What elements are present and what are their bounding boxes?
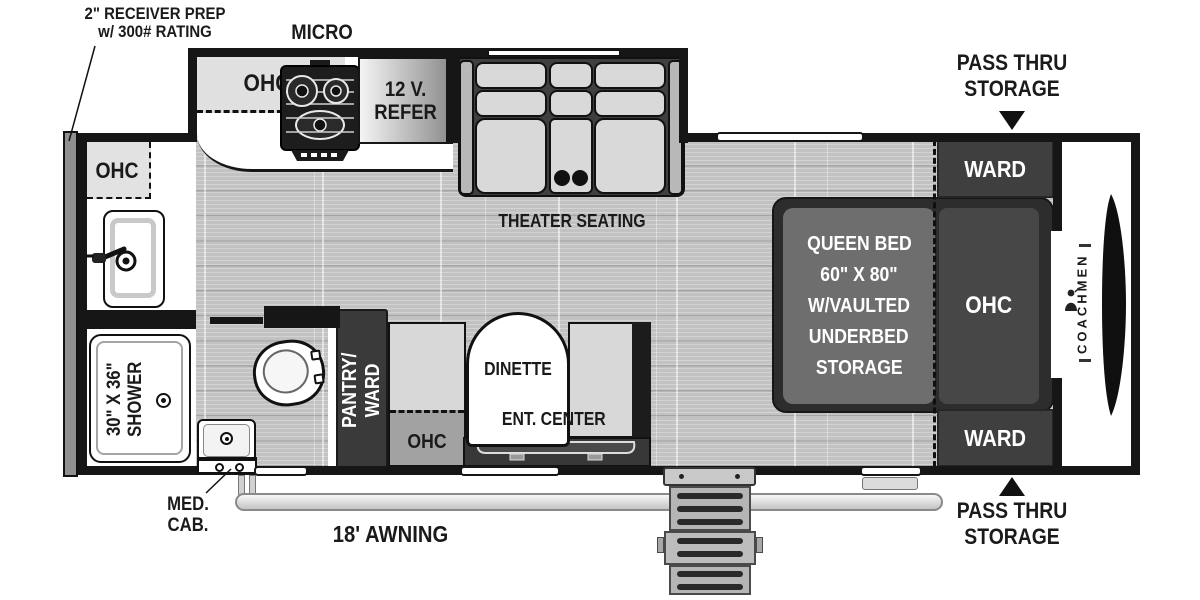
med-cab-knob-1 xyxy=(215,463,224,472)
vanity-sink xyxy=(197,419,256,462)
step3-tread-1 xyxy=(677,571,743,577)
rear-wall xyxy=(78,133,87,475)
pass-thru-top-line1: PASS THRU xyxy=(956,50,1069,76)
shower-drain-dot xyxy=(161,398,166,403)
bath-pocket-door xyxy=(210,317,263,324)
bed-overhead-cabinet: OHC xyxy=(939,208,1039,404)
ent-center-label: ENT. CENTER xyxy=(502,409,603,430)
pass-thru-top-label: PASS THRU STORAGE xyxy=(948,50,1076,102)
bed-ohc-label: OHC xyxy=(966,292,1013,320)
awning-arm-left-2 xyxy=(249,475,256,495)
receiver-prep-label: 2" RECEIVER PREP w/ 300# RATING xyxy=(55,5,255,41)
threshold-bolt-2 xyxy=(735,474,740,479)
receiver-prep-leader-line xyxy=(69,46,95,141)
theater-right-backrest-2 xyxy=(594,90,666,117)
step-latch-right xyxy=(756,537,763,553)
pass-thru-top-arrow-icon xyxy=(999,111,1025,130)
wardrobe-bottom: WARD xyxy=(937,409,1054,467)
top-wall-left xyxy=(80,133,190,142)
refer-label-line2: REFER xyxy=(374,101,437,124)
bottom-window-bedroom xyxy=(860,466,922,476)
queen-bed: QUEEN BED 60" X 80" W/VAULTED UNDERBED S… xyxy=(783,208,935,404)
theater-right-seat xyxy=(594,118,666,194)
refrigerator: 12 V. REFER xyxy=(358,57,453,144)
pass-thru-bottom-label: PASS THRU STORAGE xyxy=(948,498,1076,550)
bath-faucet-icon xyxy=(84,240,142,274)
shower-drain-icon xyxy=(156,393,171,408)
step2-tread-1 xyxy=(677,538,743,544)
bath-partition-wall xyxy=(78,310,196,329)
shower-label-line1: 30" X 36" xyxy=(104,362,125,435)
queen-bed-label-line2: 60" X 80" xyxy=(820,260,897,291)
kitchen-slide-top-wall xyxy=(188,48,460,57)
bath-ohc-label: OHC xyxy=(91,158,144,184)
awning-roller xyxy=(235,493,943,511)
theater-slide-right-wall xyxy=(679,48,688,143)
receiver-prep-line2: w/ 300# RATING xyxy=(67,23,243,41)
cupholder-right-icon xyxy=(572,170,588,186)
vanity-faucet-icon xyxy=(220,432,233,445)
theater-left-backrest-1 xyxy=(475,62,547,89)
queen-bed-label-line3: W/VAULTED xyxy=(808,291,910,322)
queen-bed-label-line5: STORAGE xyxy=(816,353,903,384)
pass-thru-bottom-line2: STORAGE xyxy=(956,524,1069,550)
step-latch-left xyxy=(657,537,664,553)
entry-threshold xyxy=(663,467,756,486)
threshold-bolt-1 xyxy=(679,474,684,479)
theater-armrest-left xyxy=(459,60,474,195)
vanity-faucet-dot xyxy=(225,437,229,441)
pass-thru-bottom-line1: PASS THRU xyxy=(956,498,1069,524)
shower-label-line2: SHOWER xyxy=(125,361,146,436)
ward-top-label: WARD xyxy=(965,156,1027,183)
coachmen-crest-icon xyxy=(1062,287,1080,313)
step1-tread-3 xyxy=(677,519,743,525)
theater-console-back-2 xyxy=(549,90,593,117)
brand-rule-top xyxy=(1079,244,1091,247)
pantry-label: PANTRY/ WARD xyxy=(336,309,388,471)
pantry-label-line1: PANTRY/ xyxy=(339,352,362,427)
floorplan-canvas: OHC 12 V. REFER THEATER SEATING QUEEN xyxy=(0,0,1200,600)
awning-arm-right xyxy=(862,477,918,490)
med-cab-line1: MED. xyxy=(160,494,216,515)
dinette-ohc-label: OHC xyxy=(394,431,459,454)
toilet-hinge-2 xyxy=(313,373,324,384)
entry-step-3 xyxy=(669,565,751,595)
bath-hall-wall xyxy=(264,306,340,328)
theater-left-seat xyxy=(475,118,547,194)
theater-right-backrest-1 xyxy=(594,62,666,89)
step2-tread-2 xyxy=(677,551,743,557)
brand-rule-bottom xyxy=(1079,359,1091,362)
step3-tread-2 xyxy=(677,584,743,590)
queen-bed-label-line4: UNDERBED xyxy=(809,322,909,353)
rear-bumper xyxy=(63,131,78,477)
queen-bed-label-line1: QUEEN BED xyxy=(807,229,912,260)
pantry-gap xyxy=(328,328,336,468)
pass-thru-top-line2: STORAGE xyxy=(956,76,1069,102)
awning-label: 18' AWNING xyxy=(327,521,455,548)
wardrobe-top: WARD xyxy=(937,140,1054,198)
bedroom-divider-dashed-line xyxy=(933,140,936,467)
ward-bottom-label: WARD xyxy=(965,425,1027,452)
theater-slide-window xyxy=(488,50,620,56)
toilet-hinge-1 xyxy=(310,349,321,360)
refer-label-line1: 12 V. xyxy=(385,78,426,101)
theater-seating-label: THEATER SEATING xyxy=(497,211,647,232)
front-wall xyxy=(1131,133,1140,475)
toilet xyxy=(249,335,329,410)
awning-arm-left-1 xyxy=(238,475,245,495)
med-cab-tray xyxy=(197,457,257,474)
med-cab-label: MED. CAB. xyxy=(156,494,220,536)
micro-label: MICRO xyxy=(282,21,361,45)
dinette-label: DINETTE xyxy=(473,359,563,380)
step1-tread-2 xyxy=(677,506,743,512)
theater-console-back-1 xyxy=(549,62,593,89)
entry-step-2 xyxy=(664,531,756,565)
bottom-window-dinette xyxy=(460,466,560,476)
entry-step-1 xyxy=(669,486,751,531)
slide-divider-wall xyxy=(446,48,460,143)
bottom-window-bath xyxy=(254,466,308,476)
front-cap-graphic xyxy=(1097,194,1133,416)
med-cab-line2: CAB. xyxy=(160,515,216,536)
pantry-label-line2: WARD xyxy=(362,363,385,417)
kitchen-slide-left-wall xyxy=(188,48,197,142)
step1-tread-1 xyxy=(677,493,743,499)
cooktop-stove-icon xyxy=(279,60,361,162)
shower-label: 30" X 36" SHOWER xyxy=(103,334,147,464)
pass-thru-bottom-arrow-icon xyxy=(999,477,1025,496)
receiver-prep-line1: 2" RECEIVER PREP xyxy=(67,5,243,23)
top-wall-window xyxy=(716,132,864,142)
theater-left-backrest-2 xyxy=(475,90,547,117)
med-cab-knob-2 xyxy=(235,463,244,472)
front-window xyxy=(1051,231,1064,378)
cupholder-left-icon xyxy=(554,170,570,186)
